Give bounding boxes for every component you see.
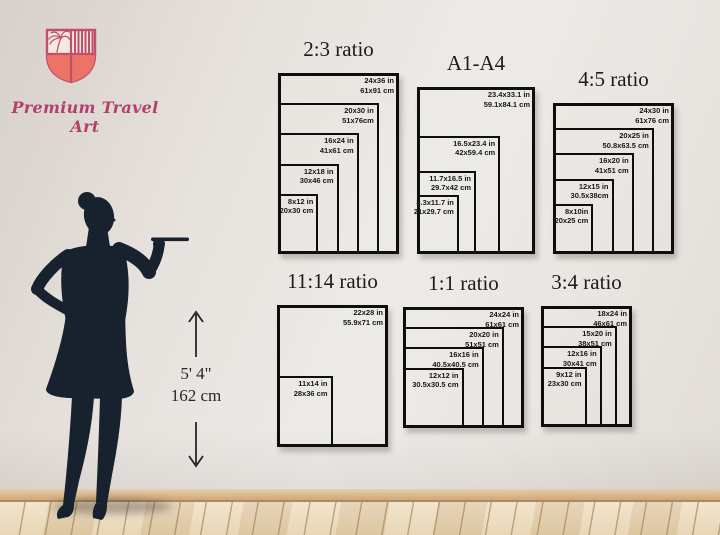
chart-2-3-ratio: 2:3 ratio 24x36 in61x91 cm20x30 in51x76c… [278,73,399,254]
arrow-down-icon [189,422,203,466]
chart-4-5-ratio: 4:5 ratio 24x30 in61x76 cm20x25 in50.8x6… [553,103,674,254]
woman-silhouette [18,183,200,528]
size-label: 24x24 in61x61 cm [485,310,519,329]
size-label: 11x14 in28x36 cm [294,379,328,398]
chart-title: 3:4 ratio [551,270,622,295]
size-label: 9x12 in23x30 cm [548,370,582,389]
size-label: 15x20 in38x51 cm [578,329,612,348]
size-label: 20x20 in51x51 cm [465,330,499,349]
size-label: 16x20 in41x51 cm [595,156,629,175]
size-label: 12x12 in30.5x30.5 cm [412,371,458,390]
brand-name: Premium Travel Art [8,98,162,136]
size-label: 11.7x16.5 in29.7x42 cm [429,174,471,193]
size-label: 8x10in20x25 cm [555,207,589,226]
chart-11-14-ratio: 11:14 ratio 22x28 in55.9x71 cm11x14 in28… [277,305,388,447]
chart-title: 11:14 ratio [287,269,378,294]
arrow-up-icon [189,312,203,357]
chart-3-4-ratio: 3:4 ratio 18x24 in46x61 cm15x20 in38x51 … [541,306,632,427]
size-label: 20x30 in51x76cm [342,106,374,125]
size-label: 18x24 in46x61 cm [593,309,627,328]
height-feet-label: 5' 4" [148,363,244,385]
size-label: 24x36 in61x91 cm [360,76,394,95]
shield-palm-logo-icon [42,26,100,86]
size-label: 8.3x11.7 in21x29.7 cm [414,198,454,217]
chart-title: A1-A4 [447,51,505,76]
size-label: 8x12 in20x30 cm [280,197,314,216]
chart-title: 1:1 ratio [428,271,499,296]
size-label: 20x25 in50.8x63.5 cm [603,131,649,150]
size-label: 16.5x23.4 in42x59.4 cm [453,139,495,158]
size-label: 12x16 in30x41 cm [563,349,597,368]
size-label: 23.4x33.1 in59.1x84.1 cm [484,90,530,109]
size-label: 24x30 in61x76 cm [635,106,669,125]
size-label: 22x28 in55.9x71 cm [343,308,383,327]
size-label: 16x24 in41x61 cm [320,136,354,155]
height-cm-label: 162 cm [148,385,244,407]
height-label: 5' 4" 162 cm [148,363,244,407]
chart-title: 4:5 ratio [578,67,649,92]
chart-title: 2:3 ratio [303,37,374,62]
size-label: 16x16 in40.5x40.5 cm [432,350,478,369]
chart-a1-a4: A1-A4 23.4x33.1 in59.1x84.1 cm16.5x23.4 … [417,87,535,254]
size-label: 12x15 in30.5x38cm [571,182,609,201]
size-label: 12x18 in30x46 cm [300,167,334,186]
chart-1-1-ratio: 1:1 ratio 24x24 in61x61 cm20x20 in51x51 … [403,307,524,428]
